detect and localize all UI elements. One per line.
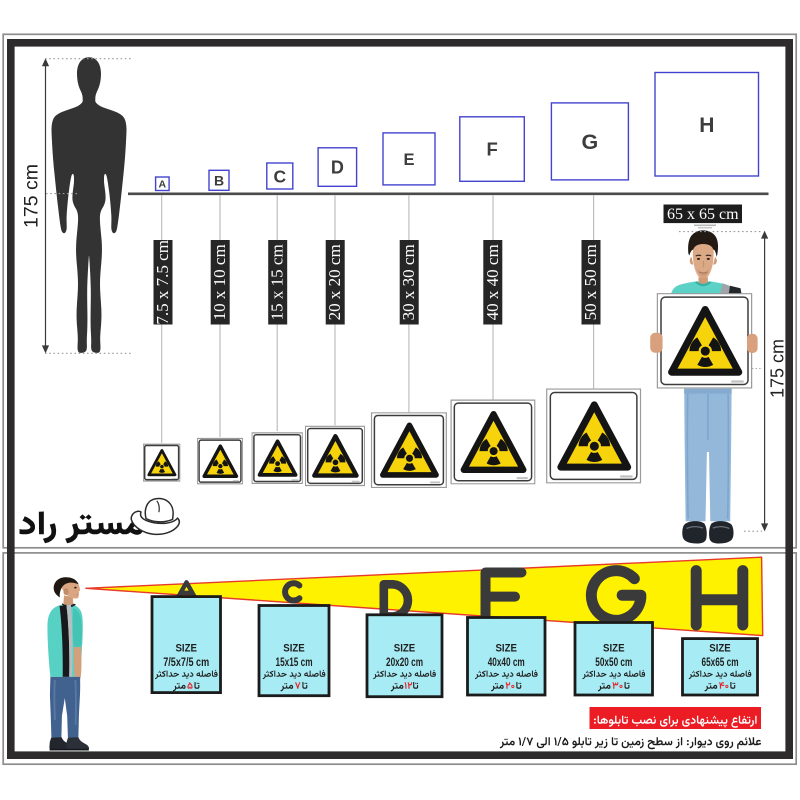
svg-text:D: D [331, 158, 344, 178]
svg-text:G: G [582, 130, 599, 154]
svg-text:E: E [403, 151, 414, 169]
svg-text:15 x 15 cm: 15 x 15 cm [268, 244, 287, 320]
svg-text:15x15 cm: 15x15 cm [276, 655, 313, 669]
svg-text:175 cm: 175 cm [21, 164, 43, 228]
svg-text:C: C [273, 166, 286, 186]
svg-text:50x50 cm: 50x50 cm [595, 655, 632, 669]
svg-text:20x20 cm: 20x20 cm [386, 655, 423, 669]
svg-text:50 x 50 cm: 50 x 50 cm [581, 244, 600, 320]
svg-text:F: F [486, 139, 497, 160]
svg-text:40 x 40 cm: 40 x 40 cm [483, 244, 502, 320]
svg-text:20 x 20 cm: 20 x 20 cm [325, 244, 344, 320]
svg-text:SIZE: SIZE [709, 643, 731, 655]
svg-text:30 x 30 cm: 30 x 30 cm [399, 244, 418, 320]
svg-text:10 x 10 cm: 10 x 10 cm [210, 244, 229, 320]
svg-text:175 cm: 175 cm [768, 339, 788, 398]
svg-text:SIZE: SIZE [394, 643, 416, 655]
svg-text:SIZE: SIZE [283, 643, 305, 655]
svg-text:SIZE: SIZE [495, 643, 517, 655]
svg-text:7/5x7/5 cm: 7/5x7/5 cm [163, 655, 209, 669]
svg-text:A: A [159, 179, 167, 191]
svg-text:7.5 x 7.5 cm: 7.5 x 7.5 cm [153, 240, 172, 325]
svg-text:40x40 cm: 40x40 cm [488, 655, 525, 669]
svg-text:H: H [699, 114, 714, 137]
svg-text:SIZE: SIZE [175, 643, 197, 655]
svg-text:65x65 cm: 65x65 cm [702, 655, 739, 669]
svg-text:65 x 65 cm: 65 x 65 cm [667, 206, 739, 223]
svg-text:SIZE: SIZE [603, 643, 625, 655]
svg-text:B: B [214, 172, 224, 188]
